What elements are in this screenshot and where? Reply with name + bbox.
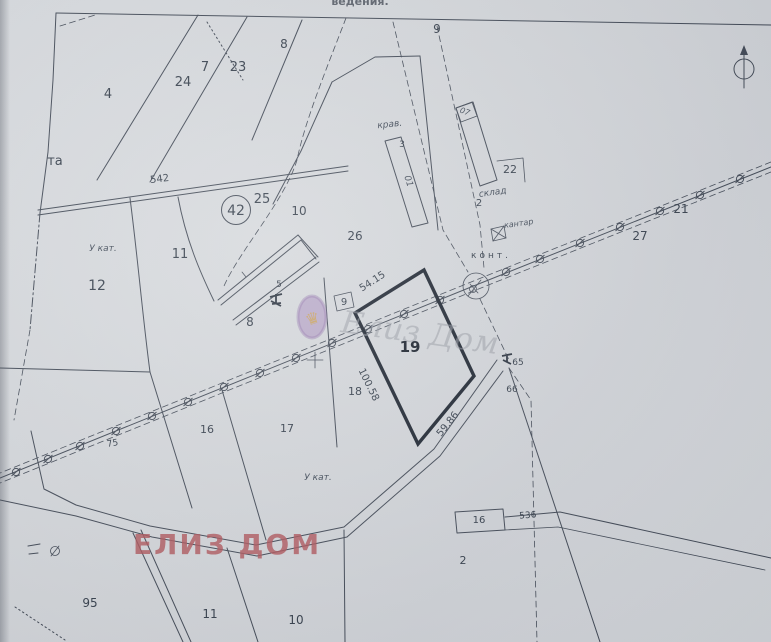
map-label-01: 01 — [401, 174, 414, 188]
map-label-4: 4 — [104, 87, 112, 102]
map-label-95: 95 — [82, 596, 97, 610]
map-label-16: 16 — [200, 423, 214, 436]
north-arrow-icon — [734, 45, 754, 88]
map-label-17: 17 — [280, 422, 294, 435]
map-drawing: ♛ Елиз Дом ведения. 42472389та5424225102… — [0, 0, 771, 642]
map-label-10: 10 — [288, 613, 303, 627]
map-label-Укат.: У кат. — [89, 244, 116, 254]
grid-cross-icon — [307, 352, 323, 368]
map-label-19: 19 — [400, 338, 421, 356]
parcel-boundaries-southeast — [455, 299, 771, 642]
map-label-536: 536 — [519, 510, 537, 521]
map-label-07: 07 — [459, 106, 472, 118]
cadastral-map-scan: ♛ Елиз Дом ведения. 42472389та5424225102… — [0, 0, 771, 642]
map-label-2: 2 — [460, 554, 467, 567]
map-label-75: 75 — [106, 438, 119, 450]
map-label-5: 5 — [276, 280, 282, 290]
sheet-boundary — [14, 13, 771, 420]
map-label-66: 66 — [506, 385, 518, 395]
header-text-fragment: ведения. — [331, 0, 388, 8]
map-label-конт.: конт. — [471, 251, 511, 261]
map-label-9: 9 — [433, 22, 441, 36]
roads-lower — [0, 360, 503, 642]
map-label-12: 12 — [88, 278, 106, 294]
map-label-21: 21 — [673, 202, 688, 216]
map-label-65: 65 — [512, 358, 523, 368]
map-label-27: 27 — [632, 229, 647, 243]
map-label-25: 25 — [254, 192, 271, 207]
map-label-59.86: 59.86 — [435, 410, 462, 439]
map-label-2: 2 — [476, 198, 482, 209]
map-label-16: 16 — [473, 515, 486, 526]
agency-stamp-text: ЕЛИЗ ДОМ — [133, 528, 321, 561]
map-label-8: 8 — [280, 37, 288, 51]
map-label-11: 11 — [172, 247, 189, 262]
map-label-крав.: крав. — [377, 119, 403, 132]
map-label-9: 9 — [341, 297, 347, 308]
map-label-кантар: кантар — [503, 217, 534, 230]
map-label-24: 24 — [175, 75, 192, 90]
parcel-boundaries-top — [97, 15, 484, 286]
map-label-7: 7 — [201, 60, 209, 75]
map-label-3: 3 — [399, 140, 405, 150]
map-symbol-mark — [28, 544, 60, 556]
map-label-23: 23 — [230, 60, 247, 75]
map-label-склад: склад — [478, 186, 507, 200]
map-label-8: 8 — [246, 315, 254, 329]
map-label-42: 42 — [227, 203, 245, 219]
map-label-та: та — [47, 154, 63, 169]
map-label-22: 22 — [503, 163, 517, 176]
map-label-542: 542 — [150, 173, 170, 186]
parcel-boundaries-middle — [0, 197, 337, 540]
map-label-Укат.: У кат. — [304, 473, 331, 483]
map-label-11: 11 — [202, 607, 217, 621]
map-label-26: 26 — [347, 229, 362, 243]
map-label-10: 10 — [291, 204, 306, 218]
map-label-54.15: 54.15 — [358, 269, 388, 294]
map-label-18: 18 — [348, 385, 362, 398]
